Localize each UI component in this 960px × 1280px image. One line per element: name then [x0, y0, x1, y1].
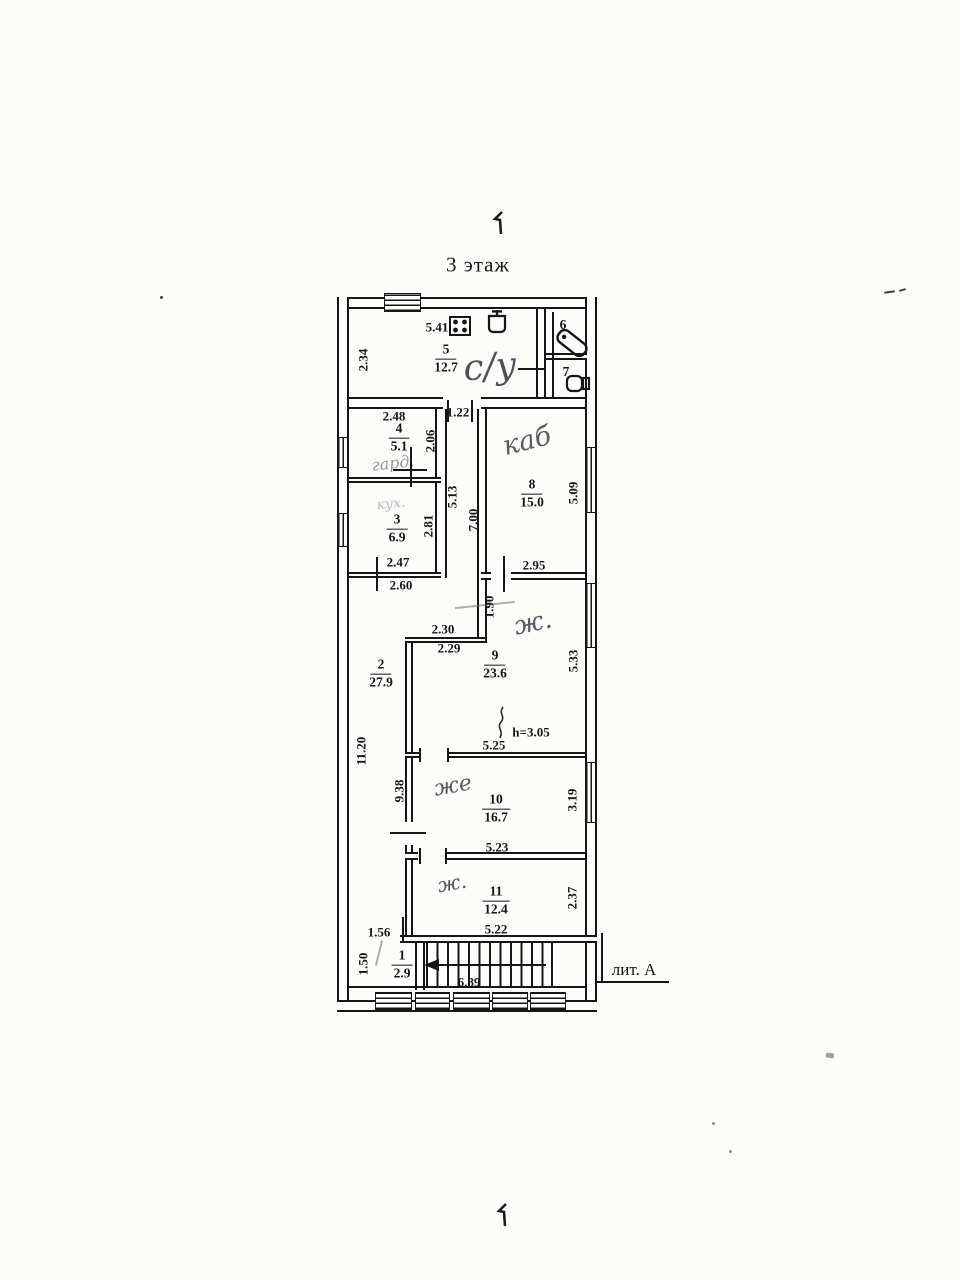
dimension-label: 2.30 [432, 623, 455, 636]
dimension-label: 5.22 [485, 923, 508, 936]
room-label: 1016.7 [482, 793, 510, 826]
handwritten-annotation: каб [500, 420, 555, 462]
room-area: 23.6 [483, 666, 507, 682]
wall-segment [585, 297, 597, 1012]
dimension-label: 2.37 [566, 887, 579, 910]
scan-artifact [712, 1122, 715, 1125]
dimension-label: 9.38 [393, 780, 406, 803]
wall-segment [349, 477, 441, 483]
door-jamb [419, 748, 421, 762]
dim-tick [402, 917, 404, 943]
wall-line [601, 933, 603, 983]
room-number: 2 [371, 658, 392, 675]
window-hatch [337, 513, 349, 547]
sink-icon [486, 310, 508, 336]
dimension-label: 2.06 [424, 430, 437, 453]
dimension-label: 5.23 [486, 841, 509, 854]
dimension-label: 1.22 [447, 406, 470, 419]
wall-line [518, 368, 546, 370]
room-label: 512.7 [434, 343, 458, 376]
dimension-label: 5.09 [567, 482, 580, 505]
litera-label: лит. А [612, 960, 657, 980]
room-number: 3 [387, 513, 408, 530]
dimension-label: 1.90 [483, 596, 496, 619]
scan-artifact [729, 1150, 732, 1153]
room-number-label: 6 [560, 317, 567, 333]
handwritten-annotation: же [432, 770, 474, 801]
wall-segment [511, 572, 585, 580]
wall-segment [445, 852, 585, 860]
room-area: 12.7 [434, 360, 458, 376]
room-label: 815.0 [520, 478, 544, 511]
dim-tick [376, 557, 378, 591]
wall-segment [405, 752, 419, 758]
room-number: 1 [392, 949, 413, 966]
room-number: 9 [485, 649, 506, 666]
door-jamb [445, 848, 447, 864]
scan-artifact [826, 1052, 835, 1058]
dimension-label: 2.47 [387, 556, 410, 569]
wall-segment [337, 297, 597, 309]
litera-underline [597, 981, 669, 983]
dimension-label: 5.13 [446, 486, 459, 509]
wall-segment [349, 397, 443, 409]
window-hatch [415, 992, 450, 1010]
scan-artifact [884, 290, 895, 294]
dim-tick [471, 400, 473, 422]
scanned-floor-plan-page: 3 этаж лит. А [0, 0, 960, 1280]
door-jamb [447, 748, 449, 762]
room-number: 11 [483, 885, 510, 902]
handwritten-annotation: гард. [371, 451, 416, 474]
stove-icon [449, 316, 471, 336]
room-area: 16.7 [482, 810, 510, 826]
dimension-label: 6.89 [458, 976, 481, 989]
dim-tick [390, 832, 426, 834]
dimension-label: 2.34 [357, 349, 370, 372]
dimension-label: 7.00 [467, 509, 480, 532]
room-label: 1112.4 [483, 885, 510, 918]
window-hatch [375, 992, 412, 1010]
pencil-stroke [375, 940, 383, 966]
wall-line [551, 943, 553, 988]
wall-segment [481, 572, 491, 580]
wall-segment [481, 397, 585, 409]
window-hatch [585, 762, 597, 823]
room-number-label: 7 [563, 364, 570, 380]
wall-segment [337, 297, 349, 1012]
room-area: 27.9 [369, 675, 393, 691]
room-label: 36.9 [387, 513, 408, 546]
door-jamb [419, 848, 421, 864]
dimension-label: 2.81 [422, 515, 435, 538]
room-area: 12.4 [483, 902, 510, 918]
dimension-label: 3.19 [566, 789, 579, 812]
wall-segment [536, 309, 546, 399]
stairs-direction-arrow-head [424, 959, 439, 971]
dimension-label: 1.56 [368, 926, 391, 939]
dimension-label: h=3.05 [512, 726, 549, 739]
dim-tick [503, 556, 505, 592]
room-number: 8 [522, 478, 543, 495]
dimension-label: 5.25 [483, 739, 506, 752]
window-hatch [384, 293, 421, 312]
dimension-label: 5.33 [567, 650, 580, 673]
room-area: 6.9 [387, 530, 408, 546]
window-hatch [530, 992, 566, 1010]
dimension-label: 11.20 [355, 737, 368, 766]
room-area: 2.9 [392, 966, 413, 982]
ink-squiggle [495, 706, 509, 740]
window-hatch [337, 437, 349, 468]
scan-artifact [490, 210, 506, 236]
dimension-label: 5.41 [426, 321, 449, 334]
window-hatch [453, 992, 490, 1010]
stairs-direction-arrow [438, 964, 546, 966]
room-label: 12.9 [392, 949, 413, 982]
dimension-label: 2.95 [523, 559, 546, 572]
window-hatch [585, 583, 597, 648]
handwritten-annotation: ж. [511, 604, 554, 641]
dimension-label: 2.60 [390, 579, 413, 592]
scan-artifact [160, 296, 163, 299]
room-area: 15.0 [520, 495, 544, 511]
handwritten-annotation: ж. [436, 869, 469, 898]
handwritten-annotation: с/у [462, 345, 518, 390]
wall-segment [405, 852, 418, 860]
dimension-label: 2.29 [438, 642, 461, 655]
window-hatch [585, 447, 597, 513]
room-number: 5 [436, 343, 457, 360]
room-label: 45.1 [389, 422, 410, 455]
dimension-label: 1.50 [357, 953, 370, 976]
scan-artifact [899, 288, 906, 292]
room-number: 4 [389, 422, 410, 439]
floor-title: 3 этаж [446, 253, 510, 278]
scan-artifact [494, 1202, 510, 1228]
room-label: 923.6 [483, 649, 507, 682]
handwritten-annotation: кух. [376, 495, 406, 514]
room-number: 10 [482, 793, 510, 810]
window-hatch [492, 992, 528, 1010]
wall-segment [447, 752, 585, 758]
room-label: 227.9 [369, 658, 393, 691]
